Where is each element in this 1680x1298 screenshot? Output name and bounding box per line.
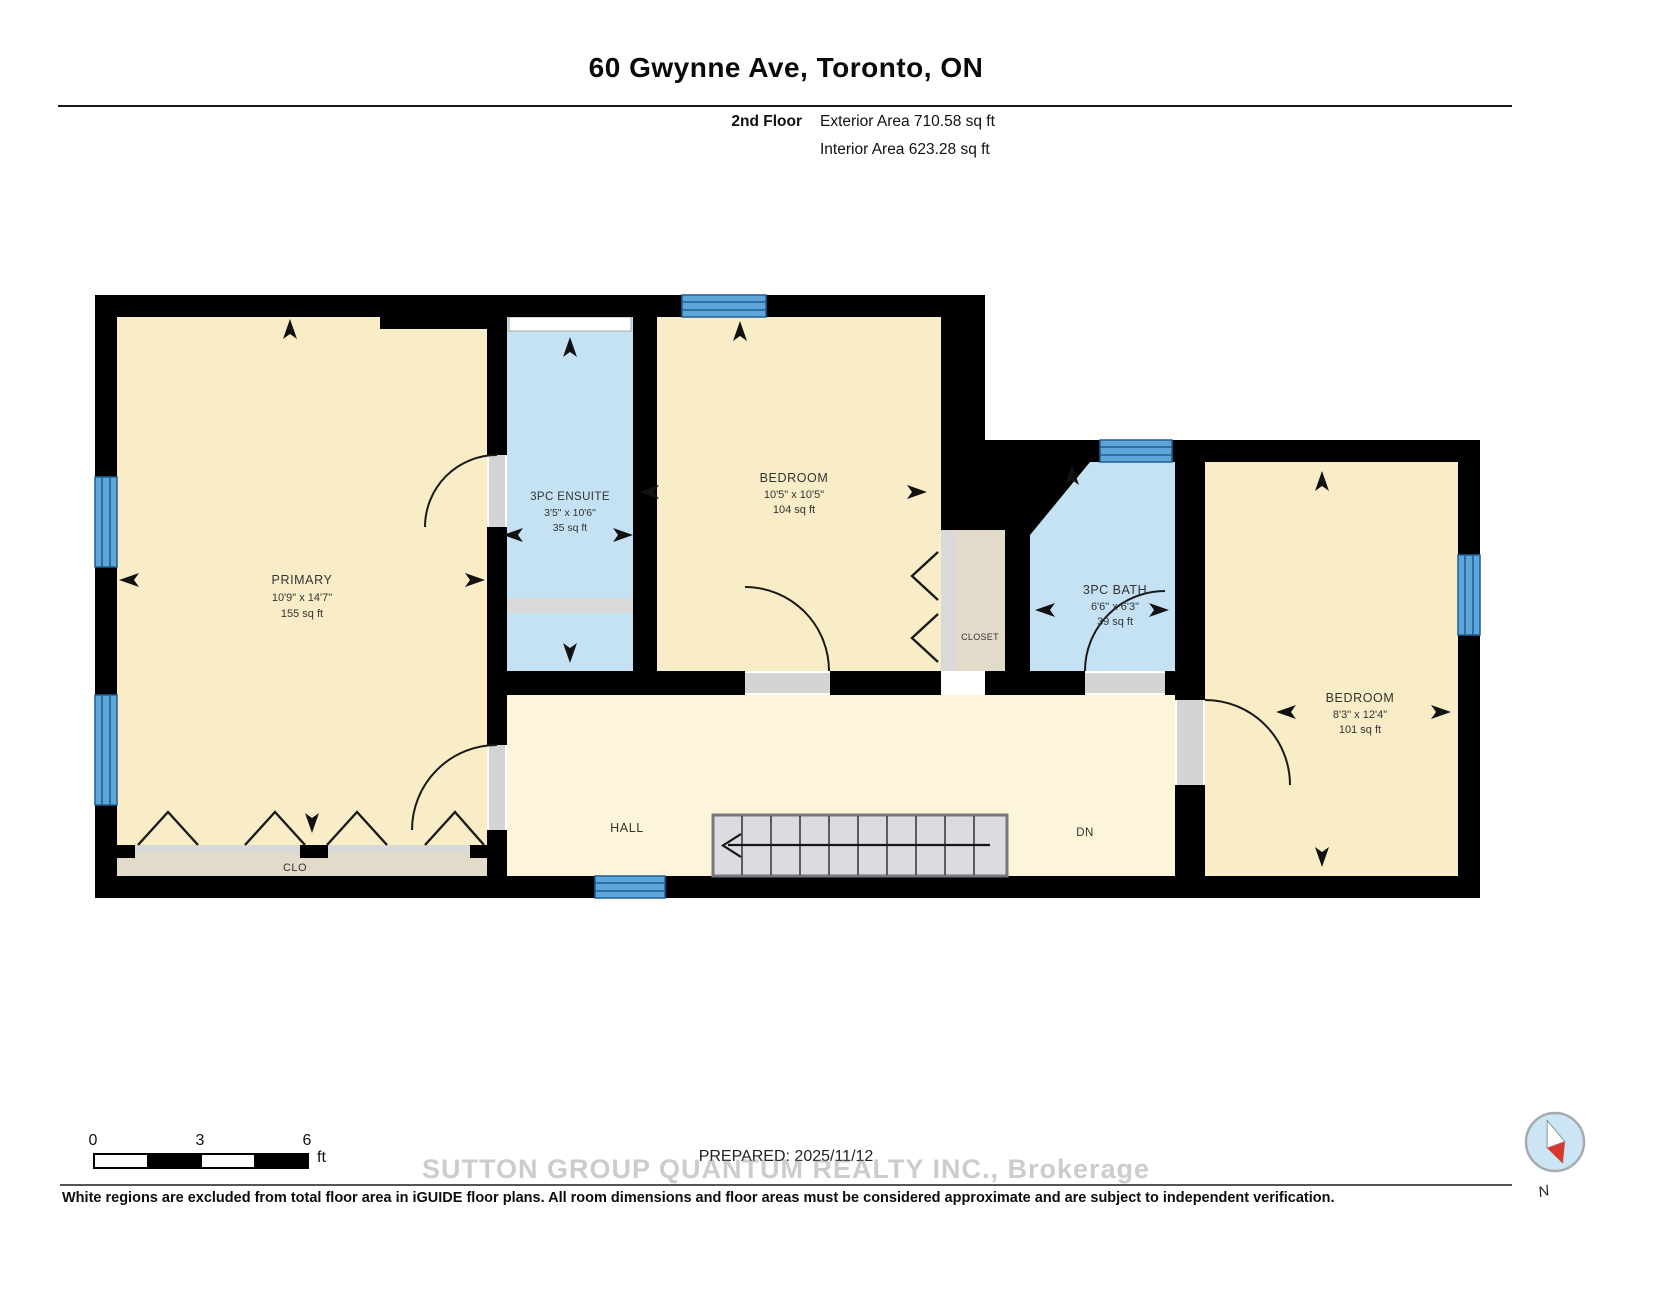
wall-left <box>95 295 117 898</box>
wall-ensuite-right <box>633 295 657 671</box>
bedroom1-dims: 10'5" x 10'5" <box>764 489 824 501</box>
primary-dims: 10'9" x 14'7" <box>272 592 332 604</box>
wall-step <box>380 317 490 329</box>
primary-door-track <box>489 745 505 830</box>
wall-right <box>1458 440 1480 898</box>
disclaimer-text: White regions are excluded from total fl… <box>62 1190 1602 1206</box>
wall-primary-right-b <box>487 527 507 745</box>
ensuite-dims: 3'5" x 10'6" <box>544 507 596 519</box>
wall-under-ensuite <box>487 671 657 695</box>
window-bath-top <box>1100 440 1172 462</box>
window-right <box>1458 555 1480 635</box>
ensuite-divider <box>507 598 633 613</box>
ensuite-door-track <box>489 455 505 527</box>
bedroom2-dims: 8'3" x 12'4" <box>1333 709 1387 721</box>
bedroom2-name: BEDROOM <box>1326 691 1395 705</box>
stairs <box>713 815 1007 876</box>
window-left-lower <box>95 695 117 805</box>
window-left-upper <box>95 477 117 567</box>
wall-bedroom2-left-a <box>1175 440 1205 700</box>
floorplan-page: 60 Gwynne Ave, Toronto, ON 2nd Floor Ext… <box>0 0 1680 1298</box>
wall-bath-bottom-right <box>1165 671 1175 695</box>
wall-bottom <box>95 876 1480 898</box>
wall-right-top <box>963 440 1480 462</box>
room-ensuite-upper <box>507 317 633 598</box>
hall-label: HALL <box>610 821 644 835</box>
ensuite-name: 3PC ENSUITE <box>530 491 610 503</box>
wall-bath-bottom-left <box>985 671 1085 695</box>
closet-label: CLOSET <box>961 632 999 642</box>
primary-area: 155 sq ft <box>281 608 323 620</box>
scale-tick-0: 0 <box>78 1132 108 1150</box>
room-bedroom2 <box>1205 462 1458 876</box>
bedroom2-door-track <box>1177 700 1203 785</box>
wall-bedroom1-right <box>941 295 985 440</box>
floor-plan-canvas: PRIMARY 10'9" x 14'7" 155 sq ft 3PC ENSU… <box>0 0 1680 1298</box>
wall-top <box>95 295 985 317</box>
brokerage-watermark: SUTTON GROUP QUANTUM REALTY INC., Broker… <box>60 1154 1512 1185</box>
scale-tick-3: 3 <box>185 1132 215 1150</box>
clo-label: CLO <box>283 862 307 874</box>
bath-dims: 6'6" x 6'3" <box>1091 601 1139 613</box>
bath-door-track <box>1085 673 1165 693</box>
closet-track <box>941 530 955 671</box>
wall-bath-corner-mass <box>941 440 1030 530</box>
track-post-c <box>470 845 487 858</box>
bedroom2-area: 101 sq ft <box>1339 724 1381 736</box>
bath-area: 39 sq ft <box>1097 616 1133 628</box>
track-post-b <box>300 845 328 858</box>
compass <box>1526 1113 1584 1171</box>
ensuite-area: 35 sq ft <box>553 522 588 534</box>
window-bedroom1-top <box>682 295 766 317</box>
footer-divider <box>60 1184 1512 1186</box>
wall-primary-right-c <box>487 830 507 876</box>
bedroom1-name: BEDROOM <box>760 471 829 485</box>
dn-label: DN <box>1076 827 1094 839</box>
bedroom1-area: 104 sq ft <box>773 504 815 516</box>
bedroom1-door-track <box>745 673 830 693</box>
room-closet <box>955 530 1005 671</box>
window-hall-bottom <box>595 876 665 898</box>
bath-name: 3PC BATH <box>1083 583 1147 597</box>
wall-bedroom1-bottom-right <box>830 671 941 695</box>
wall-closet-right <box>1005 530 1030 671</box>
scale-tick-6: 6 <box>292 1132 322 1150</box>
primary-name: PRIMARY <box>272 573 333 587</box>
ensuite-white-band <box>509 317 631 331</box>
track-post-a <box>117 845 135 858</box>
wall-bedroom1-bottom-left <box>657 671 745 695</box>
wall-bedroom2-left-b <box>1175 785 1205 898</box>
